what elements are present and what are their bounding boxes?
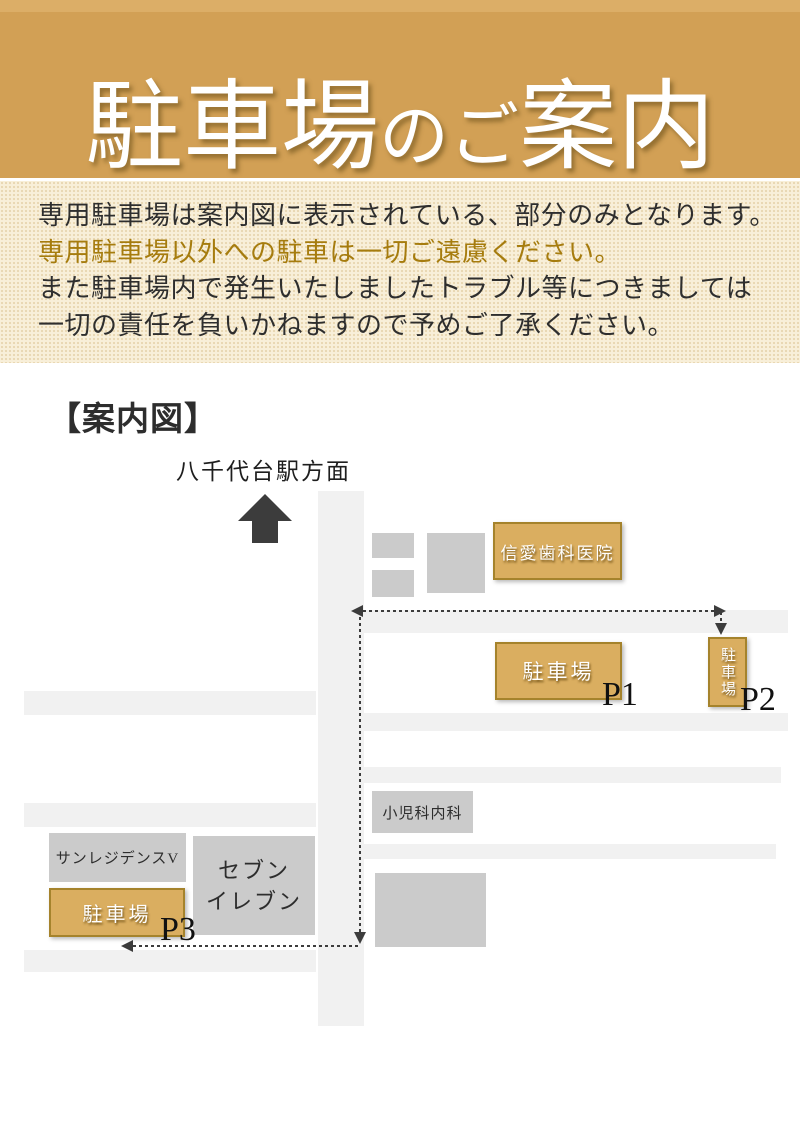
road-right-3 [364,767,781,783]
building-unlabeled [375,873,486,947]
building-seven-eleven-label: セブン イレブン [206,855,302,917]
seven-eleven-line1: セブン [218,858,290,883]
building-square [427,533,485,593]
road-left-1 [24,691,316,715]
page-title: 駐車場 の ご 案内 [85,128,715,138]
building-small-1 [372,533,414,558]
route-line-top [363,610,715,612]
building-sun-residence: サンレジデンスV [49,833,186,882]
station-direction-up-arrow-stem [252,519,278,543]
building-seven-eleven: セブン イレブン [193,836,315,935]
route-arrowhead-left-icon [351,605,363,617]
parking-lot-p3-label: 駐車場 [83,898,152,927]
map-section-title: 【案内図】 [48,392,218,440]
header-banner: 駐車場 の ご 案内 [0,0,800,178]
parking-lot-p2-label: 駐車場 [717,647,738,698]
road-right-4 [364,844,776,859]
route-line-left-drop [359,617,361,935]
building-dental-clinic: 信愛歯科医院 [493,522,622,580]
notice-line-4: 一切の責任を負いかねますので予めご了承ください。 [38,308,800,345]
road-right-2 [364,713,788,731]
parking-tag-p2: P2 [740,681,776,719]
road-left-2 [24,803,316,827]
route-arrowhead-right-icon [714,605,726,617]
route-line-bottom [133,945,359,947]
parking-tag-p1: P1 [602,676,638,714]
station-direction-up-arrow-icon [238,494,292,521]
building-sun-residence-label: サンレジデンスV [56,847,180,868]
parking-guide-page: 駐車場 の ご 案内 専用駐車場は案内図に表示されている、部分のみとなります。 … [0,0,800,1132]
notice-line-2-warning: 専用駐車場以外への駐車は一切ご遠慮ください。 [38,235,800,272]
notice-line-3: また駐車場内で発生いたしましたトラブル等につきましては [38,271,800,308]
building-small-2 [372,570,414,597]
notice-section: 専用駐車場は案内図に表示されている、部分のみとなります。 専用駐車場以外への駐車… [0,181,800,363]
parking-tag-p3: P3 [160,911,196,949]
station-direction-label: 八千代台駅方面 [176,452,351,486]
seven-eleven-line2: イレブン [206,889,302,914]
route-arrowhead-left-p3-icon [121,940,133,952]
notice-line-1: 専用駐車場は案内図に表示されている、部分のみとなります。 [38,198,800,235]
building-dental-clinic-label: 信愛歯科医院 [501,539,615,564]
parking-lot-p1-label: 駐車場 [523,656,595,686]
building-pediatrics: 小児科内科 [372,791,473,833]
building-pediatrics-label: 小児科内科 [382,802,462,823]
route-arrowhead-down-p2-icon [715,623,727,635]
road-left-3 [24,950,316,972]
route-arrowhead-down-left-icon [354,932,366,944]
